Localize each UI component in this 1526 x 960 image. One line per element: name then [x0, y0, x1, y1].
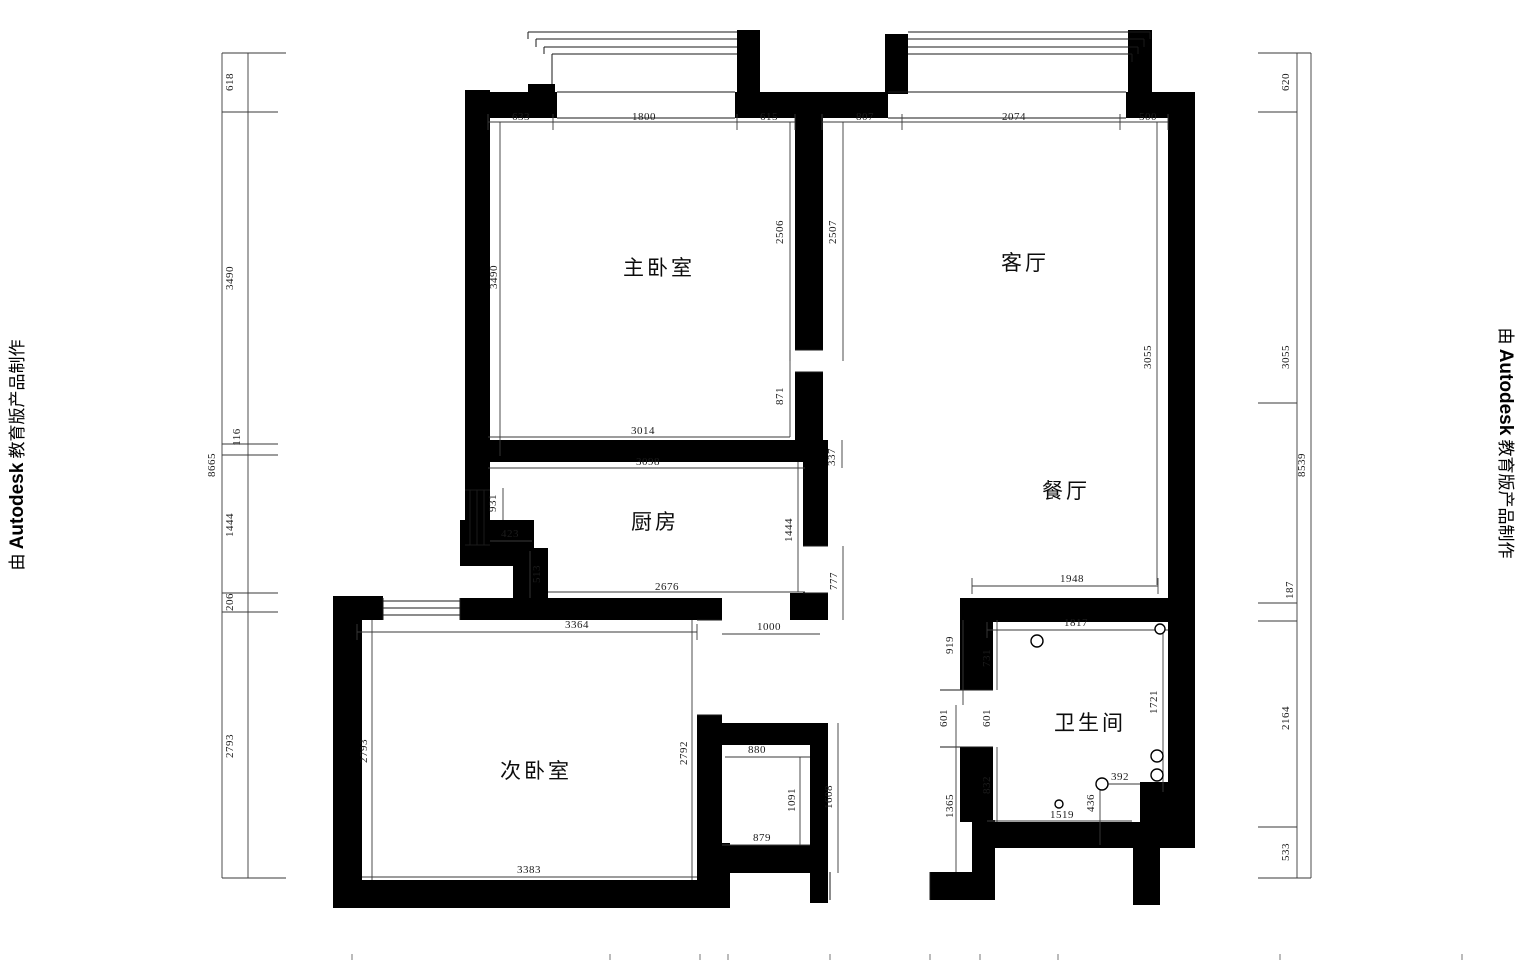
dim-label: 116 [231, 428, 243, 446]
autodesk-brand-text: Autodesk [7, 463, 28, 550]
windows-layer [383, 32, 1150, 900]
dim-label: 1721 [1148, 690, 1160, 714]
dim-label: 187 [1284, 581, 1296, 599]
dim-label: 620 [1280, 73, 1292, 91]
autodesk-watermark-left: 由 Autodesk 教育版产品制作 [3, 339, 29, 570]
plumbing-point [1096, 778, 1108, 790]
dim-label: 777 [828, 572, 840, 590]
dim-label: 2164 [1280, 706, 1292, 730]
dim-label: 513 [531, 565, 543, 583]
dim-label: 2074 [1002, 111, 1026, 123]
dim-label: 1444 [224, 513, 236, 537]
autodesk-brand-text: Autodesk [1495, 349, 1516, 436]
dim-label: 8665 [206, 453, 218, 477]
dim-label: 3055 [1280, 345, 1292, 369]
plumbing-point [1055, 800, 1063, 808]
dim-label: 500 [1139, 111, 1157, 123]
dim-label: 919 [944, 636, 956, 654]
dim-label: 615 [760, 111, 778, 123]
watermark-prefix: 由 [1496, 327, 1515, 348]
dim-label: 931 [487, 494, 499, 512]
dim-label: 1817 [1064, 617, 1088, 629]
dim-label: 807 [856, 111, 874, 123]
dim-label: 879 [753, 832, 771, 844]
dim-label: 8539 [1296, 453, 1308, 477]
dim-label: 633 [512, 111, 530, 123]
watermark-suffix: 教育版产品制作 [8, 339, 27, 462]
dim-label: 832 [981, 776, 993, 794]
dim-label: 731 [981, 649, 993, 667]
plumbing-point [1151, 750, 1163, 762]
dim-label: 1000 [757, 621, 781, 633]
room-label-dining-room: 餐厅 [1042, 479, 1090, 503]
dim-label: 3055 [1142, 345, 1154, 369]
dim-label: 392 [1111, 771, 1129, 783]
dim-label: 601 [938, 709, 950, 727]
autodesk-watermark-right: 由 Autodesk 教育版产品制作 [1494, 327, 1520, 558]
watermark-prefix: 由 [8, 549, 27, 570]
dim-label: 2507 [827, 220, 839, 244]
dim-label: 2676 [655, 581, 679, 593]
dim-label: 871 [774, 387, 786, 405]
dim-label: 2792 [678, 741, 690, 765]
dim-label: 1091 [786, 788, 798, 812]
floor-plan-page: 6331800615807207450034902506250787130143… [0, 0, 1526, 960]
room-label-kitchen: 厨房 [631, 510, 679, 534]
dim-label: 1444 [783, 518, 795, 542]
dim-label: 533 [1280, 843, 1292, 861]
dim-label: 423 [501, 528, 519, 540]
dim-label: 337 [826, 448, 838, 466]
dim-label: 3490 [224, 266, 236, 290]
plumbing-point [1155, 624, 1165, 634]
dim-label: 2793 [224, 734, 236, 758]
dim-label: 3490 [488, 265, 500, 289]
dim-label: 2793 [358, 739, 370, 763]
room-label-bathroom: 卫生间 [1054, 711, 1126, 735]
dim-label: 1519 [1050, 809, 1074, 821]
dim-label: 3364 [565, 619, 589, 631]
dim-label: 3014 [631, 425, 655, 437]
floor-plan-canvas: 6331800615807207450034902506250787130143… [0, 0, 1526, 960]
dim-label: 3383 [517, 864, 541, 876]
dim-label: 601 [981, 709, 993, 727]
dim-label: 1948 [1060, 573, 1084, 585]
dim-label: 1608 [823, 785, 835, 809]
room-label-master-bedroom: 主卧室 [623, 256, 695, 280]
dim-label: 880 [748, 744, 766, 756]
dim-label: 618 [224, 73, 236, 91]
dimension-chains-layer [222, 53, 1462, 960]
room-label-living-room: 客厅 [1001, 251, 1049, 275]
dim-label: 436 [1085, 794, 1097, 812]
dim-label: 1800 [632, 111, 656, 123]
room-label-second-bedroom: 次卧室 [500, 759, 572, 783]
walls-layer [333, 30, 1195, 908]
dim-label: 206 [224, 593, 236, 611]
dim-label: 1365 [944, 794, 956, 818]
dimension-labels-layer: 6331800615807207450034902506250787130143… [206, 73, 1308, 876]
plumbing-point [1031, 635, 1043, 647]
watermark-suffix: 教育版产品制作 [1496, 435, 1515, 558]
dim-label: 3098 [636, 456, 660, 468]
plumbing-point [1151, 769, 1163, 781]
dim-label: 2506 [774, 220, 786, 244]
